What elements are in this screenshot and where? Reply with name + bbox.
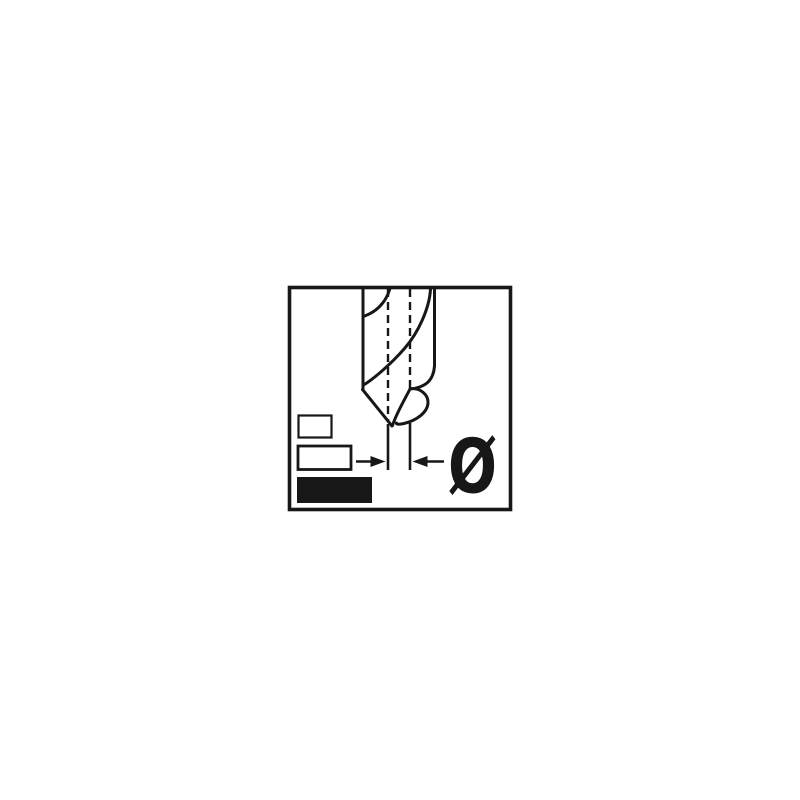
diameter-symbol: Ø: [448, 423, 497, 511]
size-box-large: [297, 477, 372, 503]
size-box-small: [299, 416, 332, 438]
drill-diameter-diagram: Ø: [0, 0, 800, 800]
figure-canvas: Ø: [0, 0, 800, 800]
size-box-medium: [298, 446, 351, 470]
